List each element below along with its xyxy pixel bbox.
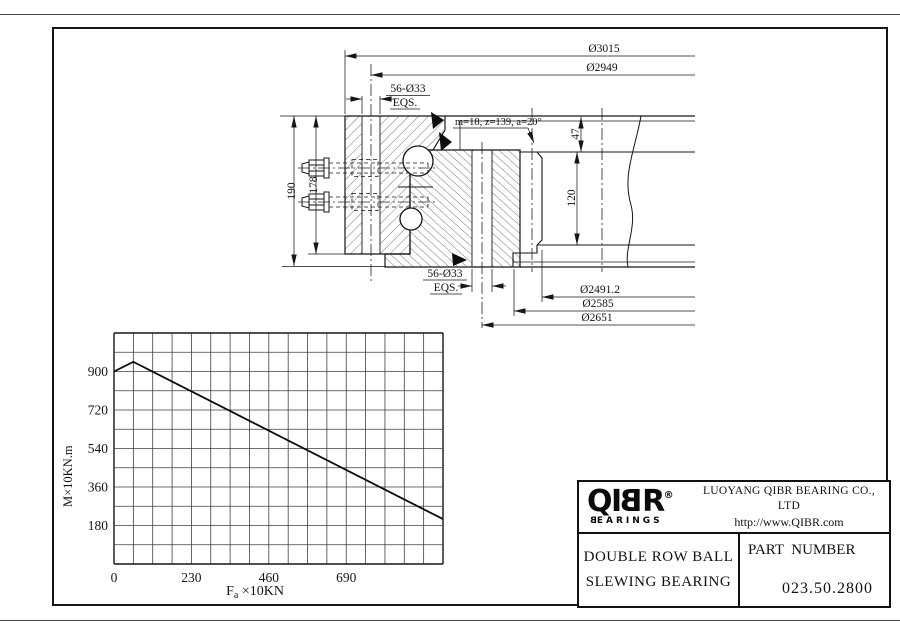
- company-logo: QIBR® BEARINGS: [579, 489, 695, 526]
- gear-spec-label: m=18, z=139, a=20°: [455, 117, 542, 128]
- part-number-cell: PART NUMBER 023.50.2800: [740, 534, 889, 606]
- capacity-curve: [114, 362, 443, 519]
- y-tick-label: 720: [88, 403, 109, 418]
- title-block-body: DOUBLE ROW BALL SLEWING BEARING PART NUM…: [579, 534, 889, 606]
- part-number-label: PART NUMBER: [748, 542, 879, 559]
- dim-190-label: 190: [286, 182, 298, 200]
- dim-eqs-bottom-label: EQS.: [434, 282, 459, 294]
- load-capacity-chart: 0230460690180360540720900M×10KN.mFa ×10K…: [50, 322, 470, 622]
- y-tick-label: 540: [88, 441, 109, 456]
- dim-d2491-label: Ø2491.2: [580, 284, 620, 296]
- registered-mark: ®: [664, 483, 674, 509]
- x-tick-label: 690: [336, 570, 357, 585]
- dim-120-label: 120: [566, 189, 578, 207]
- dim-d2651-label: Ø2651: [581, 312, 613, 324]
- company-name: LUOYANG QIBR BEARING CO., LTD: [695, 484, 883, 514]
- part-number-value: 023.50.2800: [748, 580, 879, 598]
- x-tick-label: 460: [259, 570, 280, 585]
- drawing-sheet: Ø3015 Ø2949 56-Ø33 EQS. m=18, z=139, a=2…: [0, 0, 900, 636]
- y-tick-label: 360: [88, 480, 109, 495]
- y-axis-label: M×10KN.m: [61, 445, 75, 507]
- x-tick-label: 230: [181, 570, 202, 585]
- dim-47-label: 47: [570, 128, 582, 140]
- product-line1: DOUBLE ROW BALL: [579, 545, 738, 570]
- ball-row-lower: [400, 208, 422, 230]
- dim-178-label: 178: [308, 176, 320, 194]
- x-axis-label: Fa ×10KN: [226, 584, 284, 601]
- y-tick-label: 900: [88, 364, 109, 379]
- title-block: QIBR® BEARINGS LUOYANG QIBR BEARING CO.,…: [577, 480, 891, 608]
- dim-holes-bottom-label: 56-Ø33: [427, 268, 462, 280]
- ball-row-upper: [403, 146, 433, 176]
- break-line: [627, 116, 641, 267]
- dim-gear-od-label: Ø3015: [588, 43, 620, 55]
- dim-bolt-circle-outer-label: Ø2949: [586, 62, 618, 74]
- dim-holes-top-label: 56-Ø33: [390, 83, 425, 95]
- x-tick-label: 0: [111, 570, 118, 585]
- logo-wordmark: QIBR®: [587, 489, 695, 515]
- title-block-header: QIBR® BEARINGS LUOYANG QIBR BEARING CO.,…: [579, 482, 889, 534]
- product-line2: SLEWING BEARING: [579, 570, 738, 595]
- dim-eqs-top-label: EQS.: [393, 97, 418, 109]
- product-description: DOUBLE ROW BALL SLEWING BEARING: [579, 534, 740, 606]
- company-website: http://www.QIBR.com: [695, 514, 883, 530]
- dim-d2585-label: Ø2585: [582, 298, 614, 310]
- chart-grid: [114, 333, 443, 564]
- company-info: LUOYANG QIBR BEARING CO., LTD http://www…: [695, 484, 889, 530]
- y-tick-label: 180: [88, 518, 109, 533]
